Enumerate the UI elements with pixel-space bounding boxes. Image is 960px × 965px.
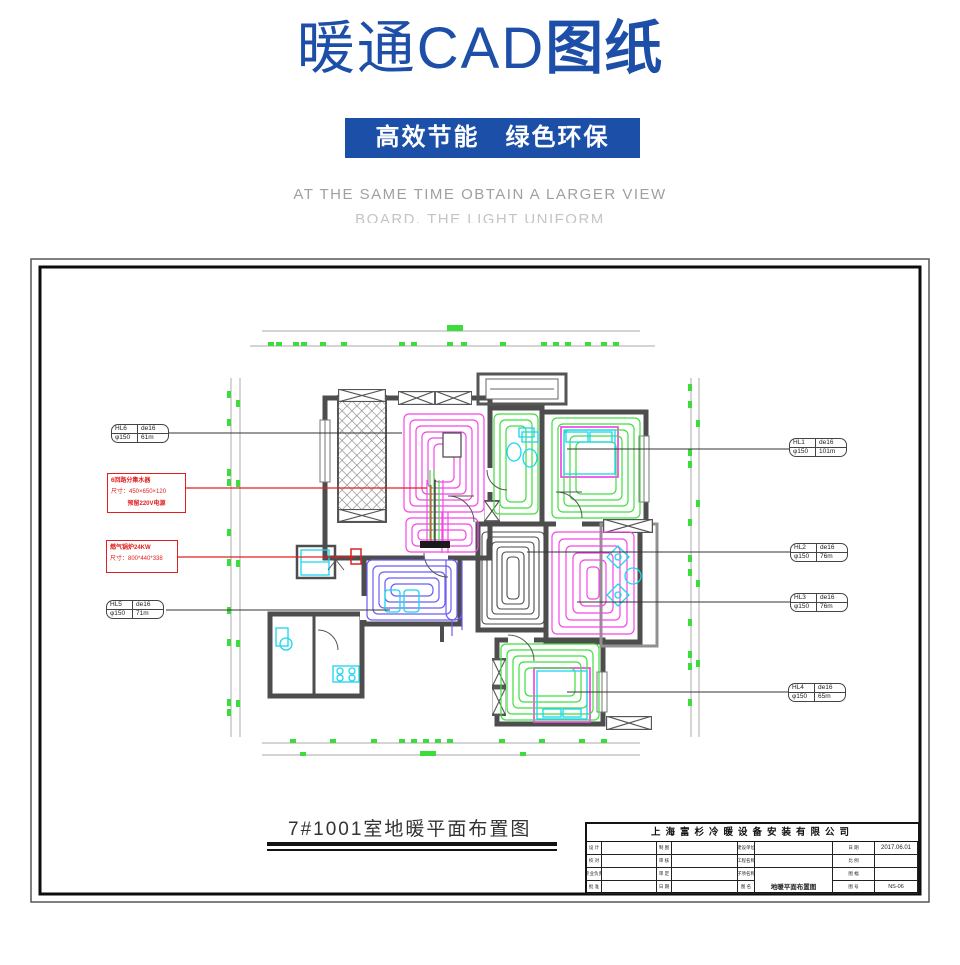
title-block-grid: 设 计 制 图 建设单位 日 期 2017.06.01 校 对 审 核 工程名称… [587,842,918,894]
title-block: 上海富杉冷暖设备安装有限公司 设 计 制 图 建设单位 日 期 2017.06.… [585,822,920,894]
titleblock-cell: 图 名 [738,881,755,894]
drawing-caption: 7#1001室地暖平面布置图 [288,814,531,841]
table [443,433,461,457]
titleblock-cell: 图 幅 [833,868,875,881]
loop-label-hl2: HL2de16 φ15076m [790,543,848,562]
titleblock-cell [602,881,657,894]
titleblock-cell: 审 核 [657,855,672,868]
loop-label-hl1: HL1de16 φ150101m [789,438,847,457]
loop-label-hl5: HL5de16 φ15071m [106,600,164,619]
titleblock-cell [875,868,918,881]
titleblock-cell: 批 准 [587,881,602,894]
title-block-company: 上海富杉冷暖设备安装有限公司 [587,824,918,842]
titleblock-cell [672,868,738,881]
titleblock-date: 2017.06.01 [875,842,918,855]
titleblock-cell: 制 图 [657,842,672,855]
caption-underline-thick [267,842,557,846]
manifold-annotation: 6回路分集水器 尺寸：450×650×120 预留220V电源 [107,473,186,513]
balcony-top-detail [486,379,558,399]
titleblock-cell: 设 计 [587,842,602,855]
titleblock-cell: 日 期 [833,842,875,855]
titleblock-cell: 日 期 [657,881,672,894]
titleblock-cell [875,855,918,868]
caption-underline-thin [267,849,557,851]
titleblock-cell [602,855,657,868]
boiler-annotation: 燃气锅炉24KW 尺寸：800*440*338 [106,540,178,573]
titleblock-cell [672,881,738,894]
titleblock-drawing-no: NS-06 [875,881,918,894]
titleblock-cell [672,855,738,868]
titleblock-cell: 建设单位 [738,842,755,855]
hatch-block [338,396,386,522]
titleblock-cell: 审 定 [657,868,672,881]
titleblock-cell: 工程名称 [738,855,755,868]
titleblock-cell: 专业负责 [587,868,602,881]
titleblock-cell [602,868,657,881]
titleblock-cell: 子项名称 [738,868,755,881]
loop-label-hl3: HL3de16 φ15076m [790,593,848,612]
titleblock-cell: 比 例 [833,855,875,868]
loop-label-hl4: HL4de16 φ15065m [788,683,846,702]
loop-label-hl6: HL6de16 φ15061m [111,424,169,443]
titleblock-cell: 校 对 [587,855,602,868]
titleblock-cell: 图 号 [833,881,875,894]
titleblock-cell [672,842,738,855]
titleblock-cell [755,842,833,855]
page: 暖通CAD图纸 高效节能 绿色环保 AT THE SAME TIME OBTAI… [0,0,960,965]
titleblock-drawing-name: 地暖平面布置图 [755,868,833,894]
titleblock-cell [755,855,833,868]
titleblock-cell [602,842,657,855]
